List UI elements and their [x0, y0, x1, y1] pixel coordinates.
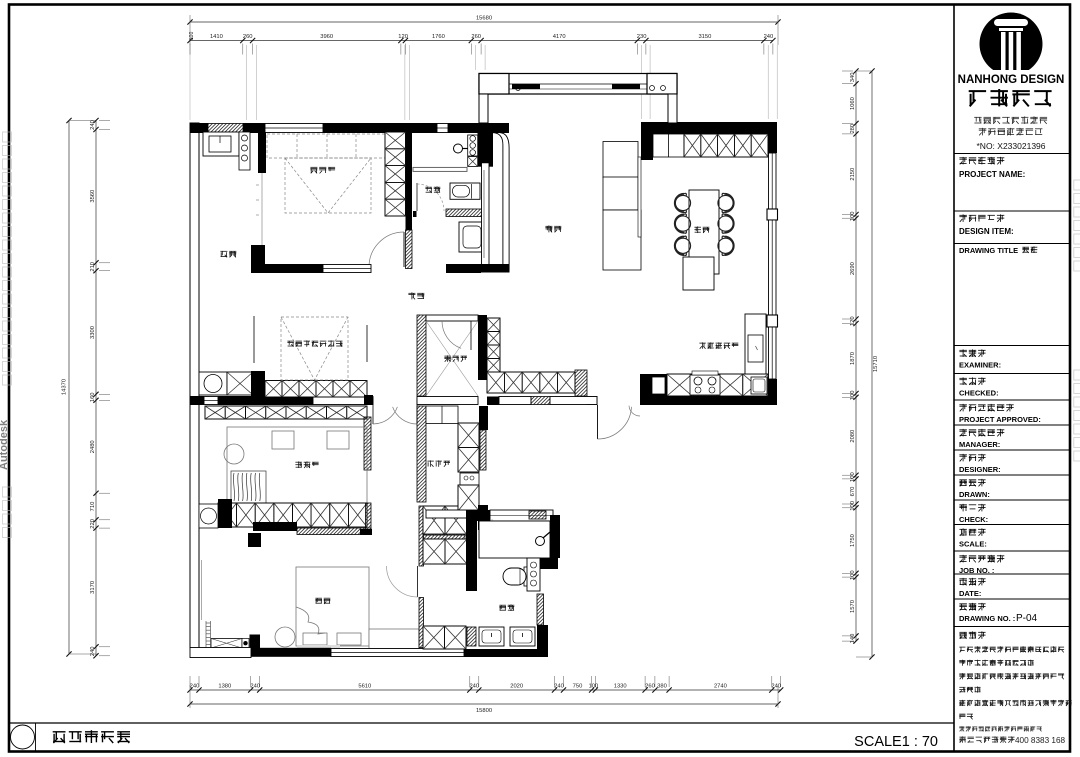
svg-text:DESIGN ITEM:: DESIGN ITEM: [959, 227, 1014, 236]
svg-text:100: 100 [850, 391, 856, 401]
svg-text:1410: 1410 [210, 34, 223, 40]
svg-text:710: 710 [90, 502, 96, 512]
svg-text:260: 260 [243, 34, 253, 40]
svg-text:100: 100 [850, 472, 856, 482]
svg-text:100: 100 [850, 211, 856, 221]
svg-text:3960: 3960 [320, 34, 333, 40]
svg-text:SCALE1 : 70: SCALE1 : 70 [854, 734, 938, 750]
svg-text:3150: 3150 [698, 34, 711, 40]
svg-text:3560: 3560 [90, 190, 96, 203]
svg-text:400 8383 168: 400 8383 168 [1015, 736, 1066, 745]
svg-text:670: 670 [850, 487, 856, 497]
svg-text:1750: 1750 [850, 534, 856, 547]
svg-text:340: 340 [850, 73, 856, 83]
svg-text:260: 260 [645, 684, 655, 690]
svg-text:P-04: P-04 [1016, 613, 1038, 624]
svg-text:100: 100 [850, 501, 856, 511]
svg-text:210: 210 [90, 262, 96, 272]
svg-text:EXAMINER:: EXAMINER: [959, 361, 1001, 370]
svg-text:1380: 1380 [218, 684, 231, 690]
svg-text:240: 240 [250, 684, 260, 690]
svg-text:240: 240 [771, 684, 781, 690]
svg-text:120: 120 [398, 34, 408, 40]
svg-text:15680: 15680 [476, 16, 492, 22]
svg-text:DRAWN:: DRAWN: [959, 490, 990, 499]
svg-text:2080: 2080 [850, 430, 856, 443]
svg-text:DATE:: DATE: [959, 589, 981, 598]
svg-text:240: 240 [190, 684, 200, 690]
svg-text:14370: 14370 [62, 379, 68, 395]
svg-text:CHECKED:: CHECKED: [959, 389, 999, 398]
svg-text:120: 120 [850, 316, 856, 326]
svg-text:3300: 3300 [90, 326, 96, 339]
svg-text:1570: 1570 [850, 600, 856, 613]
svg-text:2690: 2690 [850, 262, 856, 275]
svg-text:4170: 4170 [553, 34, 566, 40]
svg-text:2740: 2740 [714, 684, 727, 690]
svg-text:380: 380 [657, 684, 667, 690]
svg-text:NANHONG DESIGN: NANHONG DESIGN [958, 74, 1065, 86]
svg-text:1060: 1060 [850, 97, 856, 110]
svg-text:240: 240 [90, 646, 96, 656]
svg-text:3170: 3170 [90, 581, 96, 594]
svg-text:MANAGER:: MANAGER: [959, 440, 1000, 449]
svg-text:PROJECT APPROVED:: PROJECT APPROVED: [959, 415, 1041, 424]
svg-text:100: 100 [589, 684, 599, 690]
svg-text:5610: 5610 [358, 684, 371, 690]
svg-text:DRAWING TITLE: DRAWING TITLE [959, 246, 1018, 255]
svg-text:220: 220 [90, 519, 96, 529]
svg-text:100: 100 [850, 570, 856, 580]
svg-text:1330: 1330 [614, 684, 627, 690]
svg-text:750: 750 [573, 684, 583, 690]
svg-text:2480: 2480 [90, 440, 96, 453]
svg-text:Autodesk: Autodesk [0, 419, 10, 470]
svg-text:240: 240 [554, 684, 564, 690]
svg-text:CHECK:: CHECK: [959, 515, 988, 524]
svg-text:240: 240 [764, 34, 774, 40]
svg-text:240: 240 [469, 684, 479, 690]
svg-text:SCALE:: SCALE: [959, 540, 987, 549]
svg-text:1870: 1870 [850, 352, 856, 365]
svg-text:*NO: X233021396: *NO: X233021396 [977, 141, 1046, 151]
svg-text:2020: 2020 [510, 684, 523, 690]
svg-text:PROJECT NAME:: PROJECT NAME: [959, 170, 1025, 179]
svg-text:240: 240 [90, 120, 96, 130]
svg-text:15710: 15710 [873, 356, 879, 372]
svg-text:160: 160 [90, 392, 96, 402]
svg-text:DESIGNER:: DESIGNER: [959, 465, 1001, 474]
svg-text:260: 260 [471, 34, 481, 40]
svg-text:1760: 1760 [432, 34, 445, 40]
svg-text:2150: 2150 [850, 168, 856, 181]
svg-text:140: 140 [850, 634, 856, 644]
svg-text:15800: 15800 [476, 708, 492, 714]
svg-text:DRAWING NO. :: DRAWING NO. : [959, 614, 1015, 623]
svg-text:280: 280 [850, 124, 856, 134]
svg-text:230: 230 [637, 34, 647, 40]
